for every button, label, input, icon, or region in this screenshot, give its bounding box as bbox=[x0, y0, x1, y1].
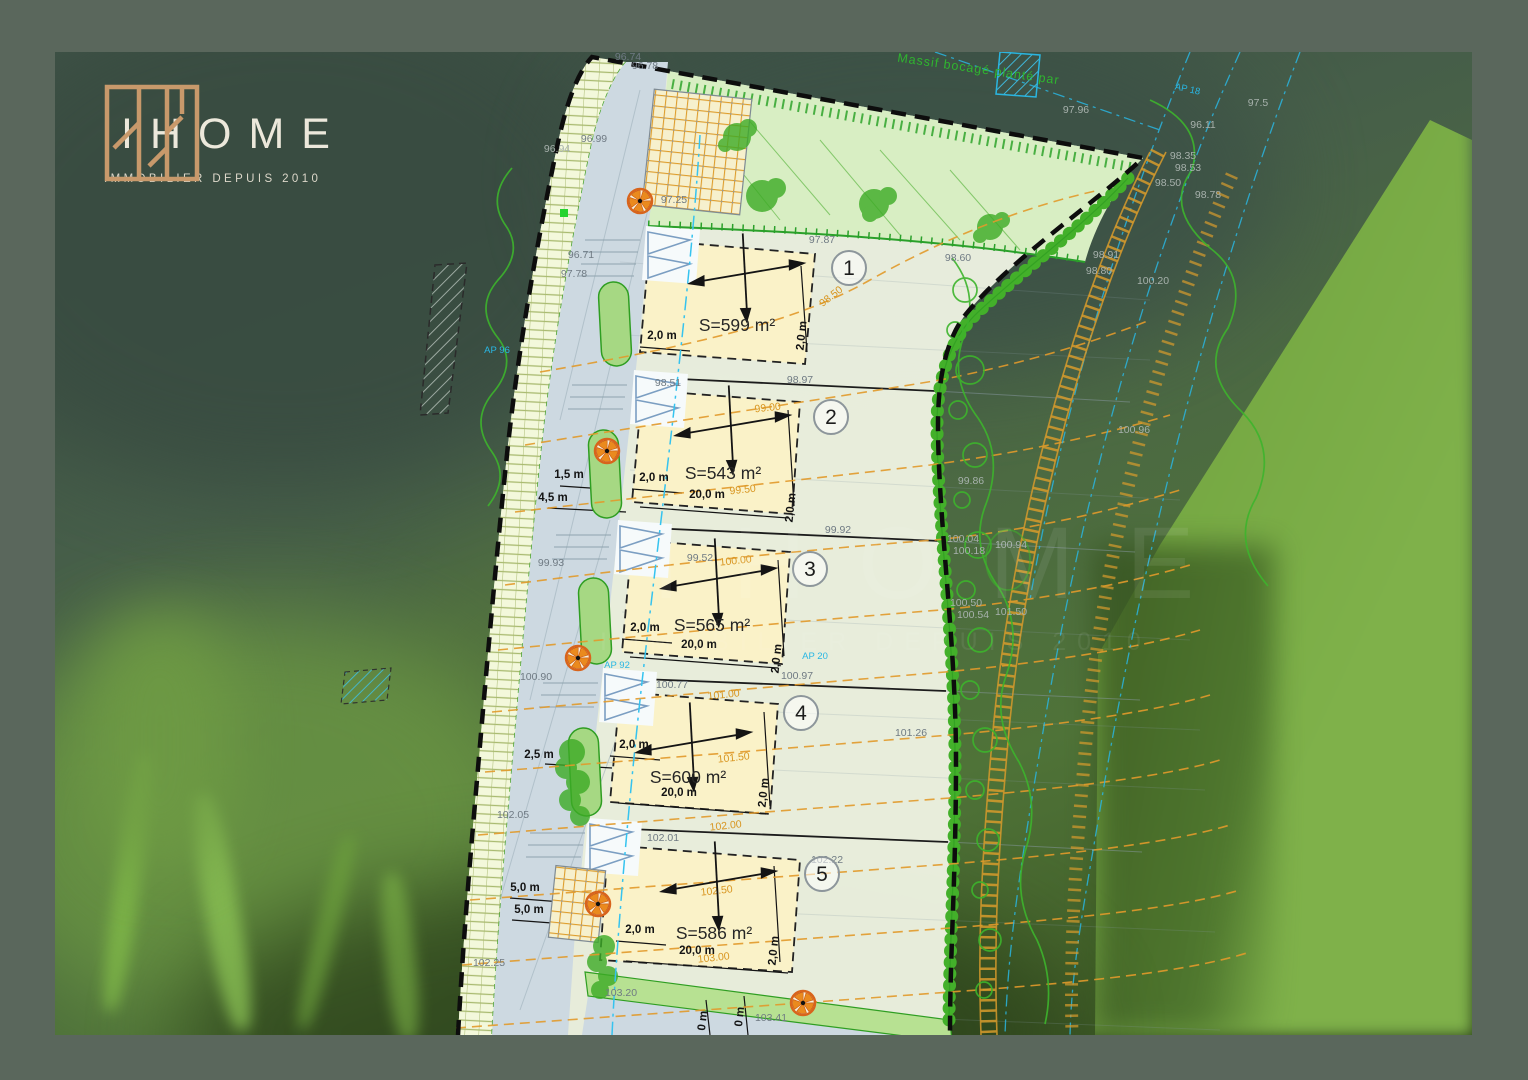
dim-label: 2,0 m bbox=[630, 622, 659, 634]
elevation-label: 102.01 bbox=[647, 832, 679, 844]
elevation-light-label: 98.53 bbox=[1175, 162, 1201, 174]
dim-label: 20,0 m bbox=[689, 489, 725, 501]
elevation-label: 98.51 bbox=[655, 377, 681, 389]
elevation-label: 103.20 bbox=[605, 987, 637, 999]
elevation-label: 102.05 bbox=[497, 809, 529, 821]
elevation-light-label: 98.80 bbox=[1086, 265, 1112, 277]
elevation-label: 102.25 bbox=[473, 957, 505, 969]
brand-logo: IHOME IMMOBILIER DEPUIS 2010 bbox=[104, 84, 320, 185]
elevation-light-label: 100.50 bbox=[950, 597, 982, 609]
ap-label: AP 96 bbox=[484, 345, 510, 356]
lot-number-label: 3 bbox=[804, 558, 816, 581]
elevation-label: 99.92 bbox=[825, 524, 851, 536]
elevation-light-label: 101.50 bbox=[995, 606, 1027, 618]
dim-label: 4,5 m bbox=[538, 492, 567, 504]
dim-label: 5,0 m bbox=[510, 882, 539, 894]
elevation-label: 98.60 bbox=[945, 252, 971, 264]
ap-label: AP 92 bbox=[604, 660, 630, 671]
elevation-light-label: 98.50 bbox=[1155, 177, 1181, 189]
lot-area-label: S=565 m² bbox=[674, 615, 751, 635]
lot-number-label: 4 bbox=[795, 702, 807, 725]
dim-label: 0 m bbox=[733, 1006, 747, 1027]
elevation-label: 96.71 bbox=[568, 249, 594, 261]
elevation-light-label: 99.86 bbox=[958, 475, 984, 487]
dim-label: 2,0 m bbox=[647, 330, 676, 342]
dim-label: 20,0 m bbox=[679, 945, 715, 957]
elevation-label: 101.26 bbox=[895, 727, 927, 739]
dim-label: 2,0 m bbox=[625, 924, 654, 936]
elevation-light-label: 100.94 bbox=[995, 539, 1027, 551]
dim-label: 20,0 m bbox=[681, 639, 717, 651]
elevation-label: 96.78 bbox=[632, 60, 658, 72]
elevation-label: 103.41 bbox=[755, 1012, 787, 1024]
dim-label: 2,0 m bbox=[639, 472, 668, 484]
gravel-square-top bbox=[642, 89, 752, 215]
dim-label: 5,0 m bbox=[514, 904, 543, 916]
lot-area-label: S=600 m² bbox=[650, 767, 727, 787]
elevation-light-label: 97.96 bbox=[1063, 104, 1089, 116]
dim-label: 1,5 m bbox=[554, 469, 583, 481]
ap-label: AP 18 bbox=[1174, 82, 1201, 98]
lot-area-label: S=586 m² bbox=[676, 923, 753, 943]
brand-monogram-icon bbox=[104, 84, 200, 182]
elevation-label: 100.90 bbox=[520, 671, 552, 683]
elevation-light-label: 100.18 bbox=[953, 545, 985, 557]
elevation-light-label: 100.20 bbox=[1137, 275, 1169, 287]
elevation-label: 98.97 bbox=[787, 374, 813, 386]
lot-number-label: 1 bbox=[843, 257, 855, 280]
dim-label: 20,0 m bbox=[661, 787, 697, 799]
lot-area-label: S=543 m² bbox=[685, 463, 762, 483]
elevation-label: 97.78 bbox=[561, 268, 587, 280]
elevation-light-label: 98.91 bbox=[1093, 249, 1119, 261]
elevation-label: 97.87 bbox=[809, 234, 835, 246]
survey-marker-dot bbox=[560, 209, 568, 217]
elevation-label: 100.97 bbox=[781, 670, 813, 682]
elevation-label: 97.25 bbox=[661, 194, 687, 206]
dim-label: 2,5 m bbox=[524, 749, 553, 761]
elevation-light-label: 96.94 bbox=[544, 143, 570, 155]
elevation-label: 100.77 bbox=[656, 679, 688, 691]
real-estate-visual: { "brand": { "name": "IHOME", "tagline":… bbox=[0, 0, 1528, 1080]
elevation-label: 96.99 bbox=[581, 133, 607, 145]
lot-number-label: 5 bbox=[816, 863, 828, 886]
elevation-light-label: 98.35 bbox=[1170, 150, 1196, 162]
elevation-light-label: 100.04 bbox=[947, 533, 979, 545]
elevation-light-label: 100.54 bbox=[957, 609, 989, 621]
elevation-light-label: 97.5 bbox=[1248, 97, 1269, 109]
elevation-light-label: 96.11 bbox=[1190, 119, 1216, 131]
elevation-light-label: 100.96 bbox=[1118, 424, 1150, 436]
cyan-hatched-parcel bbox=[341, 668, 391, 704]
elevation-label: 99.93 bbox=[538, 557, 564, 569]
dim-label: 0 m bbox=[696, 1010, 710, 1031]
elevation-label: 99.52 bbox=[687, 552, 713, 564]
gray-hatched-parcel bbox=[420, 263, 467, 415]
lot-number-label: 2 bbox=[825, 406, 837, 429]
lot-area-label: S=599 m² bbox=[699, 315, 776, 335]
ap-label: AP 20 bbox=[802, 651, 828, 662]
elevation-light-label: 98.78 bbox=[1195, 189, 1221, 201]
